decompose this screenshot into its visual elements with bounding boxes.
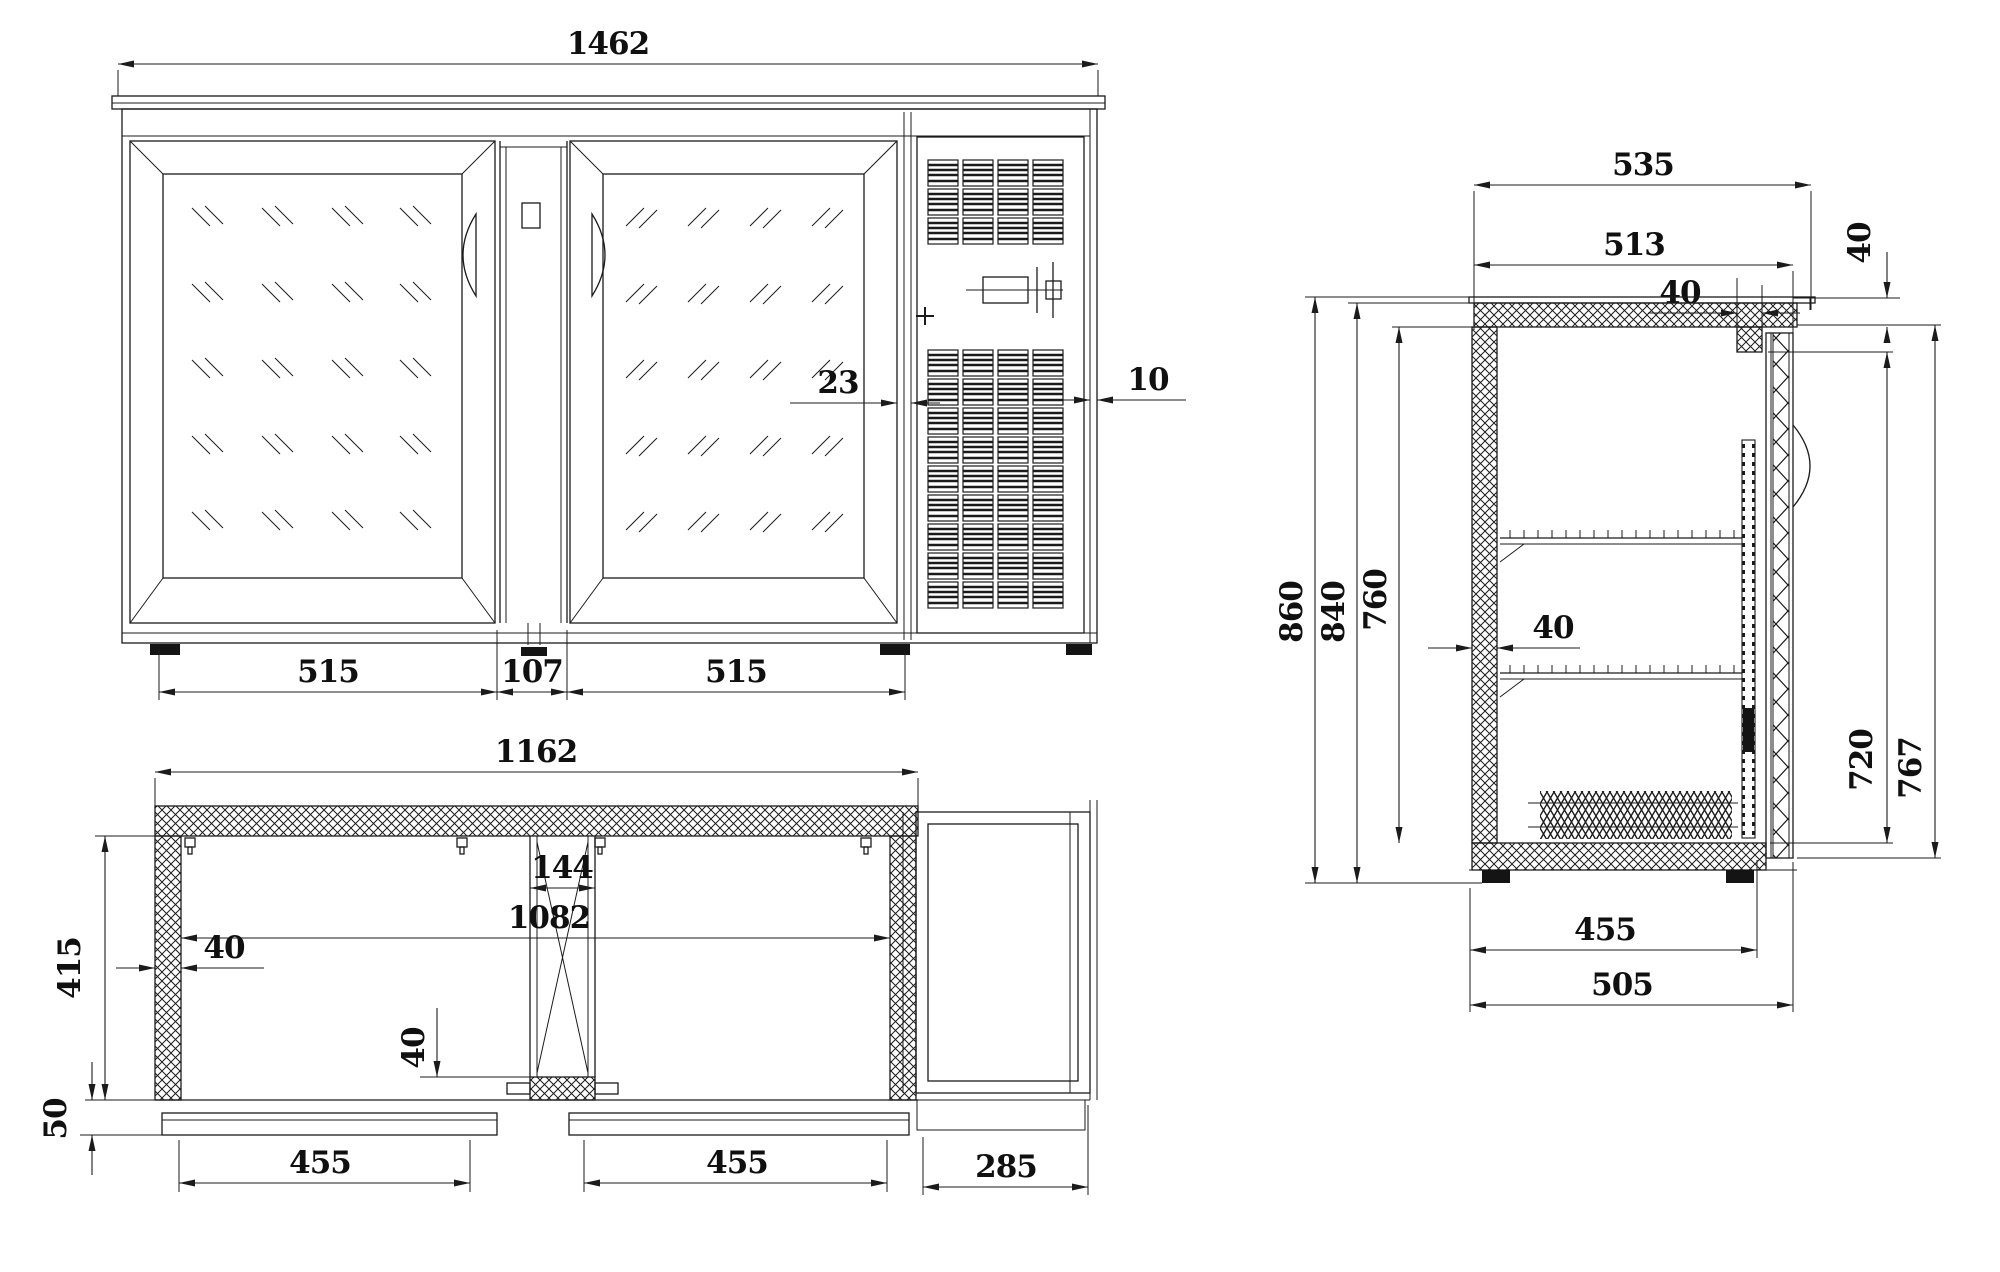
dim-text-760: 760: [1358, 569, 1394, 631]
divider-end-block: [530, 1077, 595, 1100]
dim-text-840: 840: [1316, 581, 1352, 643]
dim-text-107: 107: [501, 654, 563, 690]
side-condenser-coil: [1528, 791, 1738, 839]
technical-drawing-page: 1462: [0, 0, 2000, 1272]
dim-text-415: 415: [52, 937, 88, 999]
dim-text-505: 505: [1591, 967, 1653, 1003]
dim-text-1162: 1162: [495, 734, 577, 770]
bar-cooler-drawing: 1462: [0, 0, 2000, 1272]
dim-text-wall-40: 40: [203, 930, 245, 966]
sensor-block: [1743, 708, 1754, 752]
dim-text-285: 285: [975, 1149, 1037, 1185]
dim-text-top-40: 40: [1842, 222, 1878, 264]
dim-text-right-455: 455: [706, 1145, 768, 1181]
dim-text-50: 50: [38, 1098, 74, 1140]
dim-text-side-wall-40: 40: [1532, 610, 1574, 646]
front-vent-panel: [916, 137, 1084, 633]
dim-text-144: 144: [531, 850, 593, 886]
dim-text-535: 535: [1612, 147, 1674, 183]
dim-text-left-door-515: 515: [297, 654, 359, 690]
dim-text-767: 767: [1893, 737, 1929, 799]
dim-text-10: 10: [1127, 362, 1169, 398]
dim-text-left-455: 455: [289, 1145, 351, 1181]
corner-block: [1737, 327, 1762, 352]
dim-text-513: 513: [1603, 227, 1665, 263]
plan-dim-center-post: 144: [530, 850, 595, 888]
side-evaporator-rack: [1742, 440, 1755, 838]
dim-text-door-40: 40: [396, 1027, 432, 1069]
dim-text-side-455: 455: [1574, 912, 1636, 948]
dim-text-860: 860: [1274, 581, 1310, 643]
dim-text-right-door-515: 515: [705, 654, 767, 690]
dim-text-1082: 1082: [508, 900, 590, 936]
dim-text-1462: 1462: [567, 26, 649, 62]
dim-text-720: 720: [1844, 729, 1880, 791]
dim-text-23: 23: [817, 365, 858, 401]
